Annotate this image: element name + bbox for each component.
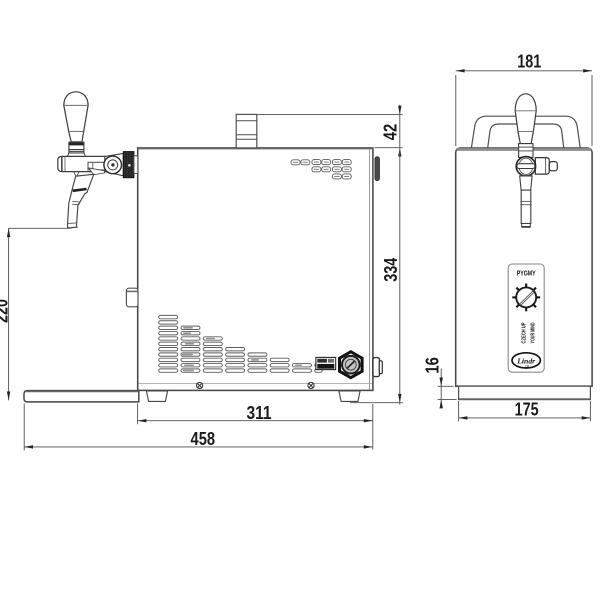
svg-text:181: 181 [517,51,541,71]
svg-text:42: 42 [381,124,401,141]
svg-text:PYGMY: PYGMY [517,270,536,277]
svg-text:YOUR MIND: YOUR MIND [530,323,536,344]
svg-text:220: 220 [0,299,12,323]
svg-text:16: 16 [423,357,443,374]
svg-text:CZECH UP: CZECH UP [521,322,527,343]
svg-text:CR: CR [525,364,530,368]
svg-text:458: 458 [191,429,216,449]
svg-text:311: 311 [247,403,272,423]
svg-text:175: 175 [515,400,539,420]
svg-text:334: 334 [381,258,401,282]
